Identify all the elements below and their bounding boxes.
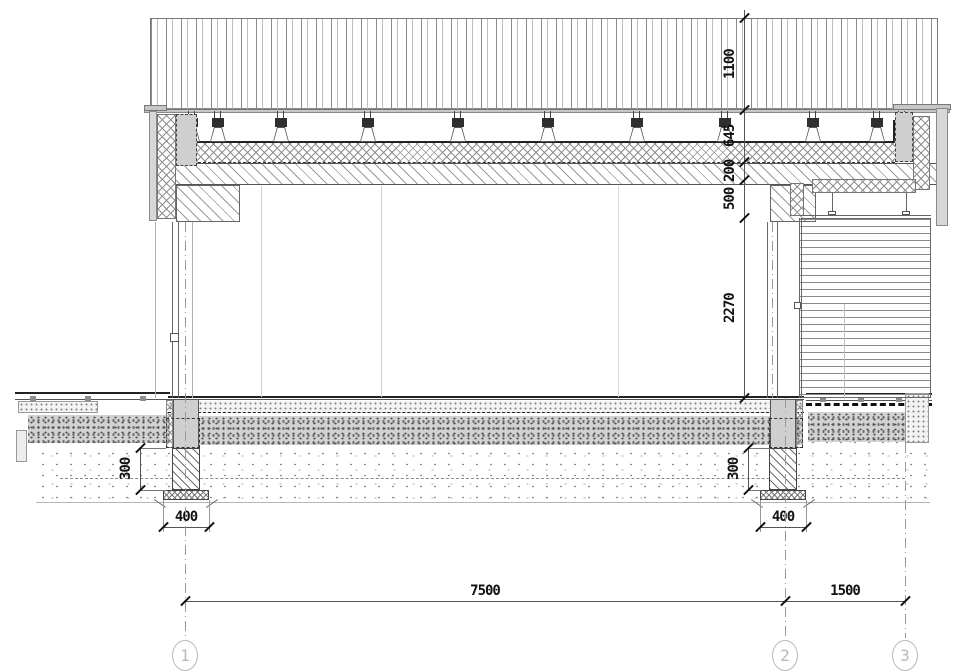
horizontal-dim-line: [185, 601, 905, 602]
pedestal-screw: [809, 111, 816, 118]
dim-label-1500: 1500: [785, 584, 905, 598]
walkway-edge-pier: [16, 430, 27, 462]
pedestal-screw: [873, 111, 880, 118]
wall-core-left: [176, 114, 197, 166]
window-left-frame-line: [172, 222, 173, 398]
grid-bubble-3: 3: [892, 640, 918, 671]
roof-insulation-band: [163, 141, 895, 163]
window-left-glass-line: [178, 222, 179, 398]
grid-bubble-2: 2: [772, 640, 798, 671]
roof-pedestal: [210, 111, 226, 142]
wall-fascia-left: [149, 111, 157, 221]
dim-label-400-left: 400: [166, 510, 206, 524]
dim-ext-line: [748, 490, 761, 491]
floor-gravel-layer: [178, 416, 802, 445]
foundation-block-left: [172, 448, 200, 490]
roof-pedestal: [540, 111, 556, 142]
soffit-hanger-rod: [832, 193, 833, 213]
pedestal-base: [869, 127, 885, 142]
pedestal-base: [450, 127, 466, 142]
pedestal-base: [210, 127, 226, 142]
canopy-fascia-right: [936, 108, 948, 226]
pedestal-base: [540, 127, 556, 142]
walkway-gravel-layer: [28, 415, 170, 443]
louver-bracket: [794, 302, 801, 309]
pedestal-block: [542, 118, 554, 127]
vertical-dim-line: [744, 10, 745, 400]
dim-ext-line: [140, 448, 166, 449]
dim-label-300-right: 300: [727, 446, 741, 492]
dim-ext-line: [140, 490, 166, 491]
dim-label-500: 500: [723, 181, 737, 217]
dim-line-400-right: [760, 527, 807, 528]
interior-background-line: [618, 186, 619, 397]
pedestal-base: [629, 127, 645, 142]
dim-line-300-right: [748, 448, 749, 490]
roof-corrugated-cladding: [150, 18, 938, 110]
pedestal-block: [275, 118, 287, 127]
roof-pedestal: [273, 111, 289, 142]
footing-pad-right: [760, 490, 806, 500]
dim-label-1100: 1100: [723, 38, 737, 90]
dim-label-2270: 2270: [723, 278, 737, 338]
pedestal-block: [807, 118, 819, 127]
dim-ext-line: [748, 448, 770, 449]
foundation-block-right: [769, 448, 797, 490]
window-left-outer-line: [155, 222, 156, 398]
window-left-mullion-joint: [170, 333, 179, 342]
section-drawing-canvas: 1100 645 200 500 2270 300 400 300 400 75…: [0, 0, 962, 672]
interior-background-line: [381, 186, 382, 397]
pedestal-base: [360, 127, 376, 142]
louver-screen-wall: [799, 218, 931, 398]
floor-finish-lines: [168, 396, 804, 400]
dim-line-300-left: [140, 448, 141, 490]
soffit-insulation: [812, 179, 916, 193]
pedestal-screw: [364, 111, 371, 118]
grid-axis-line-3: [905, 443, 906, 638]
walkway-bedding-layer: [18, 401, 98, 413]
pedestal-block: [212, 118, 224, 127]
terrace-edge-column: [905, 393, 929, 443]
pedestal-screw: [277, 111, 284, 118]
roof-pedestal: [629, 111, 645, 142]
pier-dashed-outline: [166, 418, 200, 448]
deck-sleeper: [140, 396, 146, 401]
window-right-centerline: [772, 222, 773, 398]
pedestal-base: [805, 127, 821, 142]
window-left-inner-line: [192, 222, 193, 398]
dim-label-400-right: 400: [763, 510, 803, 524]
pedestal-screw: [214, 111, 221, 118]
pedestal-screw: [454, 111, 461, 118]
footing-pad-left: [163, 490, 209, 500]
grid-bubble-1: 1: [172, 640, 198, 671]
terrace-gravel-layer: [808, 412, 905, 442]
roof-pedestal: [360, 111, 376, 142]
window-right-glass-line: [777, 222, 778, 398]
soffit-insulation-end: [790, 183, 804, 216]
dim-label-300-left: 300: [119, 446, 133, 492]
soffit-hanger-rod: [906, 193, 907, 213]
window-right-frame-line: [767, 222, 768, 398]
pedestal-block: [871, 118, 883, 127]
pier-dashed-outline: [769, 418, 803, 448]
parapet-core-right: [895, 112, 913, 162]
ground-bottom-edge: [36, 502, 930, 503]
dim-label-7500: 7500: [185, 584, 785, 598]
pedestal-screw: [544, 111, 551, 118]
dim-line-400-left: [163, 527, 210, 528]
roof-pedestal: [869, 111, 885, 142]
pedestal-block: [362, 118, 374, 127]
wall-insulation-left: [157, 114, 176, 219]
pedestal-base: [273, 127, 289, 142]
pedestal-block: [452, 118, 464, 127]
walkway-deck: [15, 392, 170, 400]
roof-pedestal: [805, 111, 821, 142]
pedestal-screw: [633, 111, 640, 118]
interior-background-line: [261, 186, 262, 397]
soffit-bottom-line: [800, 215, 931, 216]
roof-pedestal: [450, 111, 466, 142]
pedestal-block: [631, 118, 643, 127]
edge-beam-left: [176, 185, 240, 222]
floor-screed-layer: [168, 401, 804, 413]
grid-axis-line-1: [185, 222, 186, 638]
louver-center-line: [844, 304, 845, 399]
